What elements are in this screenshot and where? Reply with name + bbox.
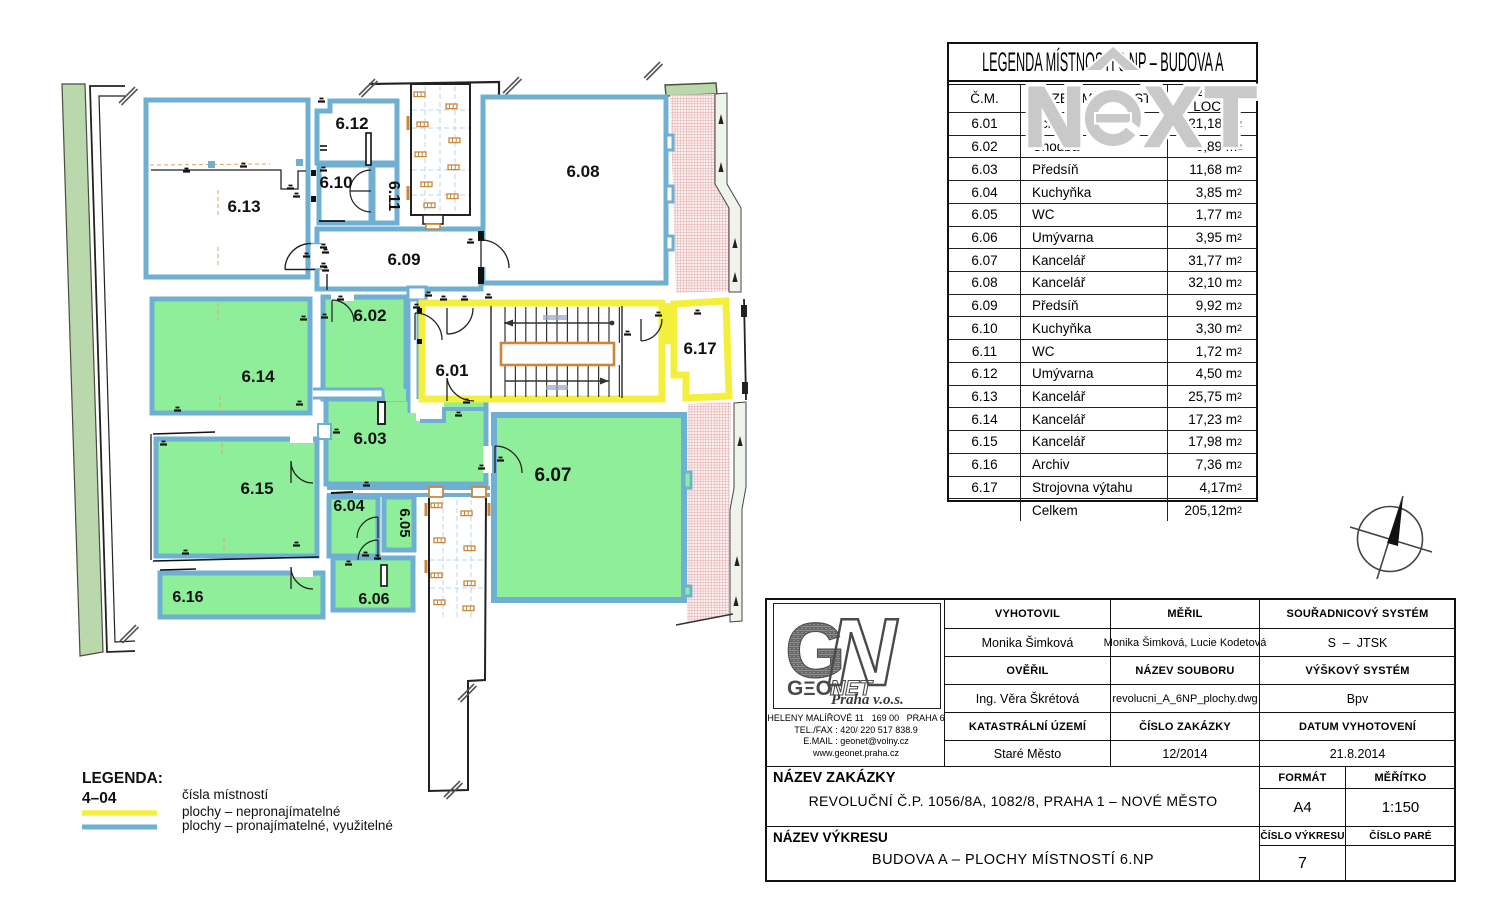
svg-text:plochy – pronajímatelné, vyu: plochy – pronajímatelné, využitelné — [182, 818, 393, 833]
svg-text:6.08: 6.08 — [566, 162, 599, 181]
svg-text:čísla místností: čísla místností — [182, 787, 269, 802]
svg-text:6.16: 6.16 — [172, 589, 203, 606]
svg-text:6.06: 6.06 — [358, 591, 389, 608]
svg-text:6.05: 6.05 — [396, 508, 413, 537]
svg-text:LEGENDA:: LEGENDA: — [82, 770, 163, 787]
svg-text:6.13: 6.13 — [227, 197, 260, 216]
svg-text:6.14: 6.14 — [241, 367, 275, 386]
svg-text:6.03: 6.03 — [353, 429, 386, 448]
svg-text:6.15: 6.15 — [240, 479, 273, 498]
svg-text:4–04: 4–04 — [82, 790, 117, 807]
svg-text:6.09: 6.09 — [387, 250, 420, 269]
svg-text:6.01: 6.01 — [435, 361, 468, 380]
svg-text:Praha v.o.s.: Praha v.o.s. — [831, 692, 904, 708]
svg-text:6.04: 6.04 — [333, 498, 364, 515]
svg-text:6.12: 6.12 — [335, 114, 368, 133]
svg-text:6.11: 6.11 — [385, 181, 402, 211]
svg-text:GΞO: GΞO — [787, 677, 832, 700]
svg-text:6.07: 6.07 — [535, 465, 572, 486]
svg-text:6.02: 6.02 — [353, 306, 386, 325]
svg-text:6.17: 6.17 — [683, 339, 716, 358]
svg-text:plochy – nepronajímatelné: plochy – nepronajímatelné — [182, 804, 340, 819]
svg-text:6.10: 6.10 — [319, 173, 352, 192]
